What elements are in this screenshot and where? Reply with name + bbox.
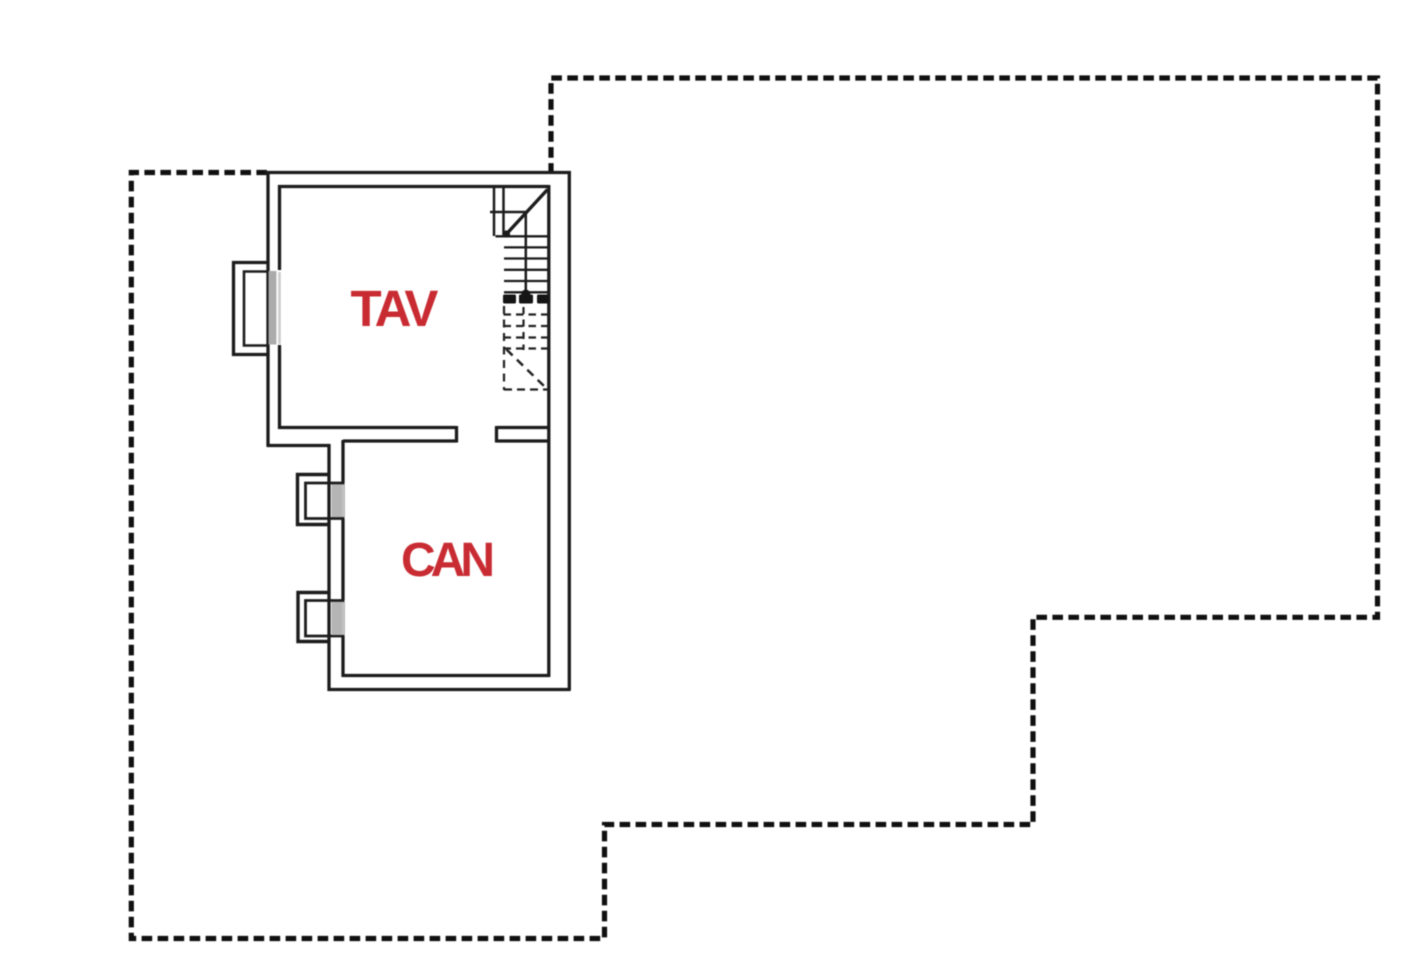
svg-text:CAN: CAN [401, 534, 492, 587]
svg-text:TAV: TAV [351, 280, 439, 337]
